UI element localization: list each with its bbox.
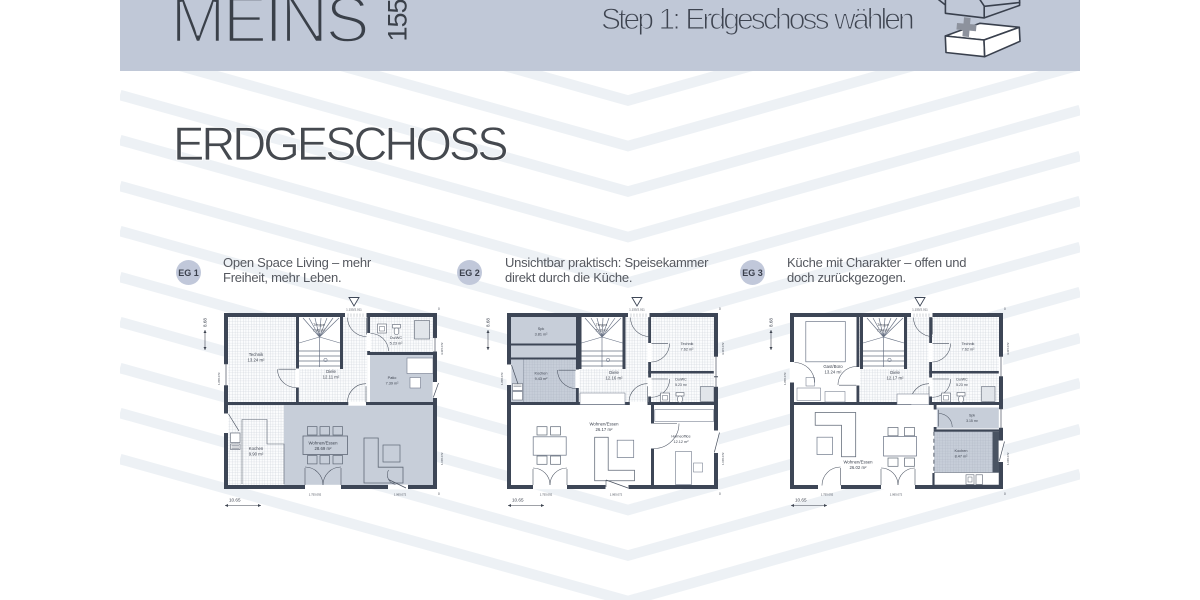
svg-text:Wohnen/Essen: Wohnen/Essen — [308, 441, 338, 446]
svg-text:Kochen: Kochen — [955, 449, 968, 453]
svg-text:Kochen: Kochen — [535, 372, 548, 376]
svg-text:1.155/2.011: 1.155/2.011 — [346, 308, 362, 312]
svg-text:1.865.073: 1.865.073 — [217, 372, 221, 385]
svg-text:1.755.092: 1.755.092 — [821, 493, 834, 497]
svg-text:1.065.072: 1.065.072 — [1006, 452, 1010, 465]
svg-text:0: 0 — [1004, 307, 1006, 311]
svg-text:7.93 m²: 7.93 m² — [595, 328, 608, 332]
svg-text:1.755.092: 1.755.092 — [309, 493, 322, 497]
svg-text:7.46 m²: 7.46 m² — [313, 328, 326, 332]
svg-text:10.65: 10.65 — [512, 498, 524, 503]
svg-text:10.65: 10.65 — [795, 498, 807, 503]
svg-text:28.69 m²: 28.69 m² — [315, 446, 333, 451]
svg-text:Diele: Diele — [890, 370, 900, 375]
svg-text:0: 0 — [438, 307, 440, 311]
svg-text:155: 155 — [383, 0, 413, 42]
svg-text:8.68: 8.68 — [769, 318, 774, 327]
svg-text:Technik: Technik — [681, 342, 694, 346]
svg-text:8.47 m²: 8.47 m² — [955, 454, 969, 458]
svg-text:9.43 m²: 9.43 m² — [535, 377, 549, 381]
svg-text:8.68: 8.68 — [486, 318, 491, 327]
svg-text:3.15 m²: 3.15 m² — [966, 419, 979, 423]
svg-text:Homeoffice: Homeoffice — [671, 435, 690, 439]
svg-text:5.23 m²: 5.23 m² — [390, 341, 404, 345]
svg-text:1.155/2.011: 1.155/2.011 — [629, 308, 645, 312]
svg-text:7.62 m²: 7.62 m² — [681, 347, 695, 351]
svg-text:Patio: Patio — [388, 376, 397, 380]
svg-text:Treppe: Treppe — [596, 323, 608, 327]
svg-text:1.065.072: 1.065.072 — [610, 493, 623, 497]
svg-text:Treppe: Treppe — [313, 323, 325, 327]
svg-text:1.065.072: 1.065.072 — [721, 452, 725, 465]
svg-text:Wohnen/Essen: Wohnen/Essen — [843, 460, 873, 465]
svg-text:Du/WC: Du/WC — [390, 336, 402, 340]
svg-text:12.16 m²: 12.16 m² — [606, 375, 624, 380]
svg-text:1.065.072: 1.065.072 — [394, 493, 407, 497]
svg-text:10.65: 10.65 — [229, 498, 241, 503]
svg-text:Diele: Diele — [609, 370, 619, 375]
svg-text:4.415.072: 4.415.072 — [1006, 342, 1010, 355]
svg-text:7.94 m²: 7.94 m² — [877, 328, 890, 332]
svg-text:12.17 m²: 12.17 m² — [887, 375, 905, 380]
svg-text:12.11 m²: 12.11 m² — [323, 374, 340, 379]
svg-text:1.065.072: 1.065.072 — [440, 452, 444, 465]
svg-text:4.415.072: 4.415.072 — [721, 342, 725, 355]
svg-text:1.865.073: 1.865.073 — [783, 372, 787, 385]
svg-text:7.39 m²: 7.39 m² — [386, 381, 400, 385]
svg-text:Gast/Büro: Gast/Büro — [823, 364, 843, 369]
svg-text:Kochen: Kochen — [249, 446, 264, 451]
svg-text:13.24 m²: 13.24 m² — [248, 357, 266, 362]
svg-text:7.62 m²: 7.62 m² — [962, 347, 976, 351]
svg-text:0: 0 — [719, 492, 721, 496]
svg-text:1.065.072: 1.065.072 — [890, 493, 903, 497]
svg-text:9.90 m²: 9.90 m² — [249, 451, 264, 456]
svg-text:0: 0 — [1004, 492, 1006, 496]
svg-text:26.02 m²: 26.02 m² — [850, 465, 868, 470]
svg-text:Spk: Spk — [538, 327, 545, 331]
svg-text:26.17 m²: 26.17 m² — [596, 427, 614, 432]
svg-text:Diele: Diele — [326, 369, 336, 374]
svg-text:1.755.092: 1.755.092 — [540, 493, 553, 497]
svg-text:0: 0 — [438, 492, 440, 496]
svg-text:1.865.073: 1.865.073 — [500, 372, 504, 385]
svg-text:Technik: Technik — [962, 342, 975, 346]
svg-text:Technik: Technik — [249, 352, 264, 357]
svg-text:3.81 m²: 3.81 m² — [535, 332, 549, 336]
svg-text:Spk: Spk — [969, 414, 975, 418]
svg-text:Du/WC: Du/WC — [956, 378, 968, 382]
svg-text:0: 0 — [719, 307, 721, 311]
svg-text:5.23 m²: 5.23 m² — [956, 383, 969, 387]
svg-text:8.68: 8.68 — [203, 318, 208, 327]
svg-text:Treppe: Treppe — [877, 323, 889, 327]
svg-text:Du/WC: Du/WC — [675, 378, 687, 382]
svg-text:12.12 m²: 12.12 m² — [674, 440, 690, 444]
svg-text:13.24 m²: 13.24 m² — [825, 369, 843, 374]
svg-text:4.415.072: 4.415.072 — [440, 342, 444, 355]
svg-text:Wohnen/Essen: Wohnen/Essen — [589, 422, 619, 427]
svg-text:5.23 m²: 5.23 m² — [675, 383, 688, 387]
svg-text:1.155/2.011: 1.155/2.011 — [912, 308, 928, 312]
